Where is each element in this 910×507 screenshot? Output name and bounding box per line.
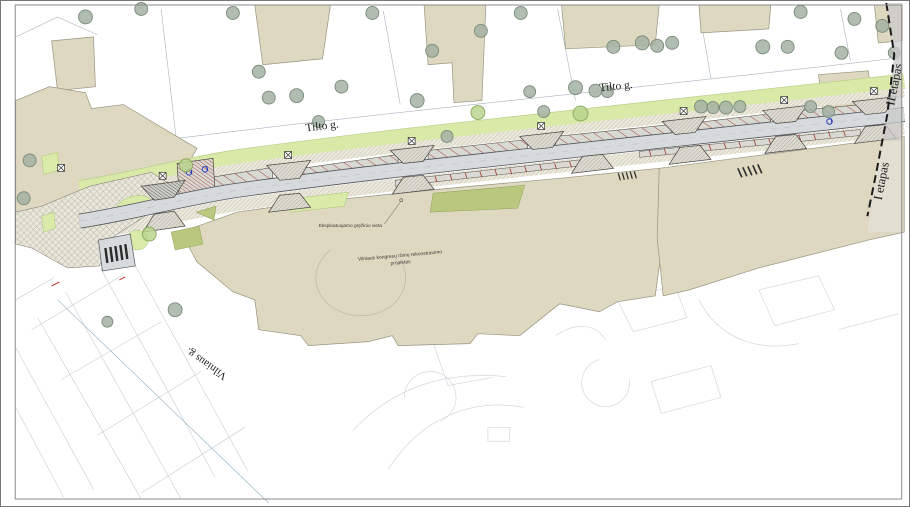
site-plan-canvas: Eksploatuojamo gręžinio vieta Vilniaus k… (1, 1, 909, 506)
sign-box (408, 137, 415, 144)
annotation-borehole: Eksploatuojamo gręžinio vieta (319, 223, 383, 229)
sign-box (538, 123, 545, 130)
building-top-1 (255, 5, 331, 65)
sign-box (159, 172, 166, 179)
building-top-4 (699, 5, 771, 33)
road-vilniaus-stub (98, 234, 135, 271)
street-label-tilto-1: Tilto g. (305, 119, 340, 135)
sign-box (285, 151, 292, 158)
building-top-left-small (52, 37, 96, 91)
sign-box (680, 108, 687, 115)
site-plan: Eksploatuojamo gręžinio vieta Vilniaus k… (0, 0, 910, 507)
sign-box (870, 88, 877, 95)
sign-box (781, 97, 788, 104)
street-label-vilniaus: Vilniaus g. (184, 345, 230, 382)
street-label-tilto-2: Tilto g. (599, 79, 633, 94)
sign-box (58, 164, 65, 171)
